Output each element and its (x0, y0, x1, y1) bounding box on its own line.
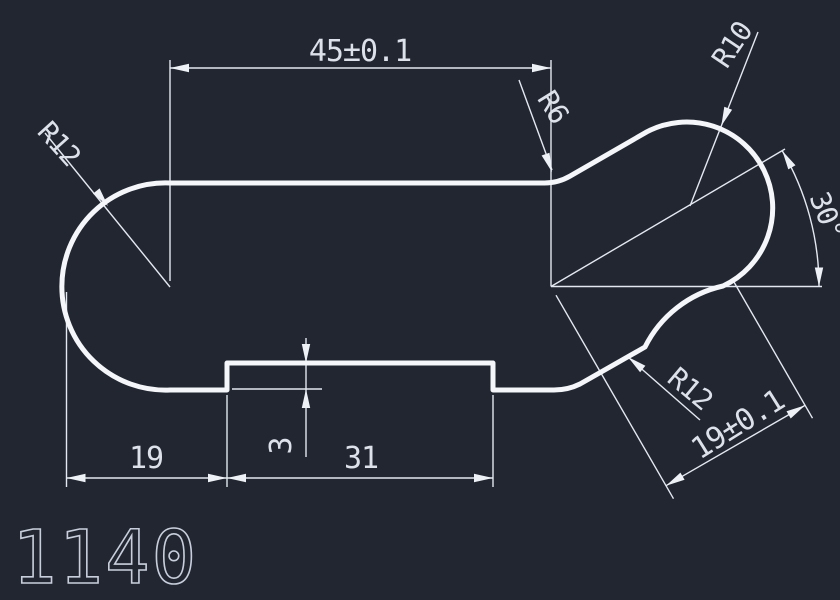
arrowhead-icon (208, 474, 227, 482)
dimension-top-length-label: 45±0.1 (309, 34, 411, 69)
arrowhead-bottom-icon (815, 268, 823, 287)
leader-left-end-radius: R12 (31, 115, 170, 287)
part-outline (62, 122, 773, 390)
arrowhead-left-icon (67, 474, 86, 482)
cove-radius-label: R12 (661, 361, 719, 417)
leader-top-fillet-radius: R6 (519, 80, 576, 172)
arrowhead-down-icon (302, 344, 310, 363)
dimension-top-length: 45±0.1 (170, 34, 551, 287)
arrowhead-up-icon (302, 389, 310, 408)
left-end-radius-label: R12 (31, 115, 87, 172)
part-number: 1140 (12, 515, 198, 600)
leader-cove-radius: R12 (628, 357, 719, 420)
arrowhead-left-icon (170, 64, 189, 72)
notch-width-label: 31 (344, 441, 378, 476)
arrowhead-icon (721, 107, 732, 126)
top-fillet-radius-label: R6 (531, 85, 576, 130)
cad-drawing-view: 45±0.1 R12 R6 R10 30° (0, 0, 840, 600)
bottom-left-offset-label: 19 (129, 441, 163, 476)
arrowhead-right-icon (474, 474, 493, 482)
notch-depth-label: 3 (264, 437, 299, 454)
arrowhead-right-icon (532, 64, 551, 72)
arrowhead-left-icon (666, 473, 685, 486)
dimension-notch-depth: 3 (232, 338, 322, 457)
drawing-canvas: 45±0.1 R12 R6 R10 30° (0, 0, 840, 600)
leader-lobe-radius: R10 (690, 16, 759, 206)
arrowhead-top-icon (782, 151, 795, 170)
dimension-lobe-angle: 30° (551, 149, 840, 287)
arrowhead-icon (227, 474, 246, 482)
lobe-angle-label: 30° (803, 187, 840, 243)
lobe-radius-label: R10 (705, 16, 759, 74)
